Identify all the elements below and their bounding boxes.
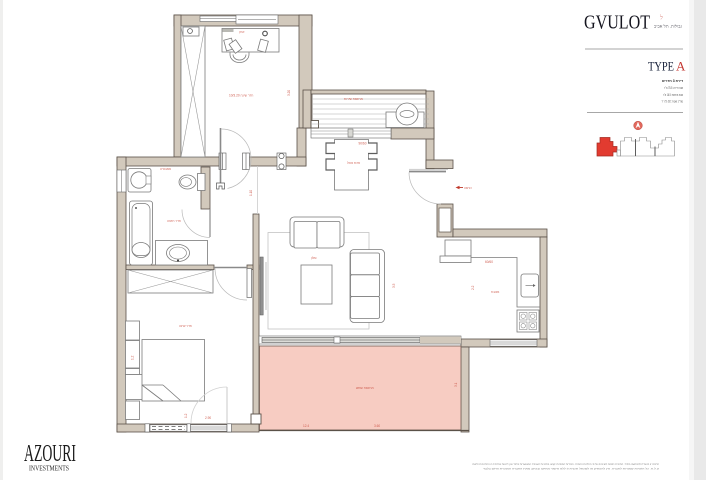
- svg-text:מרפסת שירות: מרפסת שירות: [344, 97, 363, 101]
- svg-text:ל: ל: [659, 15, 663, 22]
- svg-text:דירת 3 חדרים: דירת 3 חדרים: [662, 79, 683, 83]
- svg-text:12.4: 12.4: [303, 424, 309, 428]
- svg-text:2.90: 2.90: [205, 416, 211, 420]
- svg-text:3.60: 3.60: [374, 424, 380, 428]
- svg-text:מטבח: מטבח: [491, 290, 499, 294]
- svg-text:פינת אוכל: פינת אוכל: [347, 161, 360, 165]
- svg-text:3.20: 3.20: [287, 90, 291, 96]
- svg-text:3.5: 3.5: [392, 283, 396, 288]
- svg-text:שטח מרפסת: 16.5 מ"ר: שטח מרפסת: 16.5 מ"ר: [663, 93, 683, 97]
- svg-text:כניסה: כניסה: [464, 186, 472, 190]
- svg-text:INVESTMENTS: INVESTMENTS: [29, 465, 69, 473]
- svg-text:חדר רחצה: חדר רחצה: [167, 219, 181, 223]
- svg-text:מרפסת שמש: מרפסת שמש: [356, 386, 374, 390]
- svg-text:אמבטיה: אמבטיה: [160, 167, 171, 171]
- svg-text:1.2: 1.2: [184, 413, 188, 418]
- svg-text:GVULOT: GVULOT: [584, 12, 650, 34]
- svg-text:TYPE: TYPE: [648, 59, 674, 74]
- svg-text:90/60: 90/60: [359, 142, 367, 146]
- svg-text:סה"כ שטח: 92 מ"ר ד: סה"כ שטח: 92 מ"ר ד: [662, 100, 684, 104]
- svg-text:A: A: [676, 59, 686, 74]
- svg-text:שטח דירה: 75.5 מ"ר: שטח דירה: 75.5 מ"ר: [664, 86, 683, 90]
- svg-text:ט.ל.ח. כל הזכויות שמורות לחברה: ט.ל.ח. כל הזכויות שמורות לחברה. אין להעת…: [483, 467, 659, 471]
- svg-text:2.2: 2.2: [471, 285, 475, 290]
- svg-text:1.10: 1.10: [249, 190, 253, 196]
- svg-text:ארון: ארון: [239, 30, 244, 34]
- svg-text:הדמיה זו מיועדת להמחשה בלבד. ה: הדמיה זו מיועדת להמחשה בלבד. התכנית כפופ…: [472, 462, 659, 466]
- svg-text:1.2: 1.2: [131, 355, 135, 360]
- svg-text:גבולות. תל אביב: גבולות. תל אביב: [654, 24, 683, 29]
- svg-text:חדר שינה: חדר שינה: [179, 324, 192, 328]
- svg-text:AZOURI: AZOURI: [24, 441, 76, 467]
- svg-text:60/60: 60/60: [485, 260, 493, 264]
- svg-text:חדר שינה 10/3.20: חדר שינה 10/3.20: [229, 94, 253, 98]
- svg-text:3.1: 3.1: [454, 382, 458, 387]
- svg-text:סלון: סלון: [311, 256, 316, 260]
